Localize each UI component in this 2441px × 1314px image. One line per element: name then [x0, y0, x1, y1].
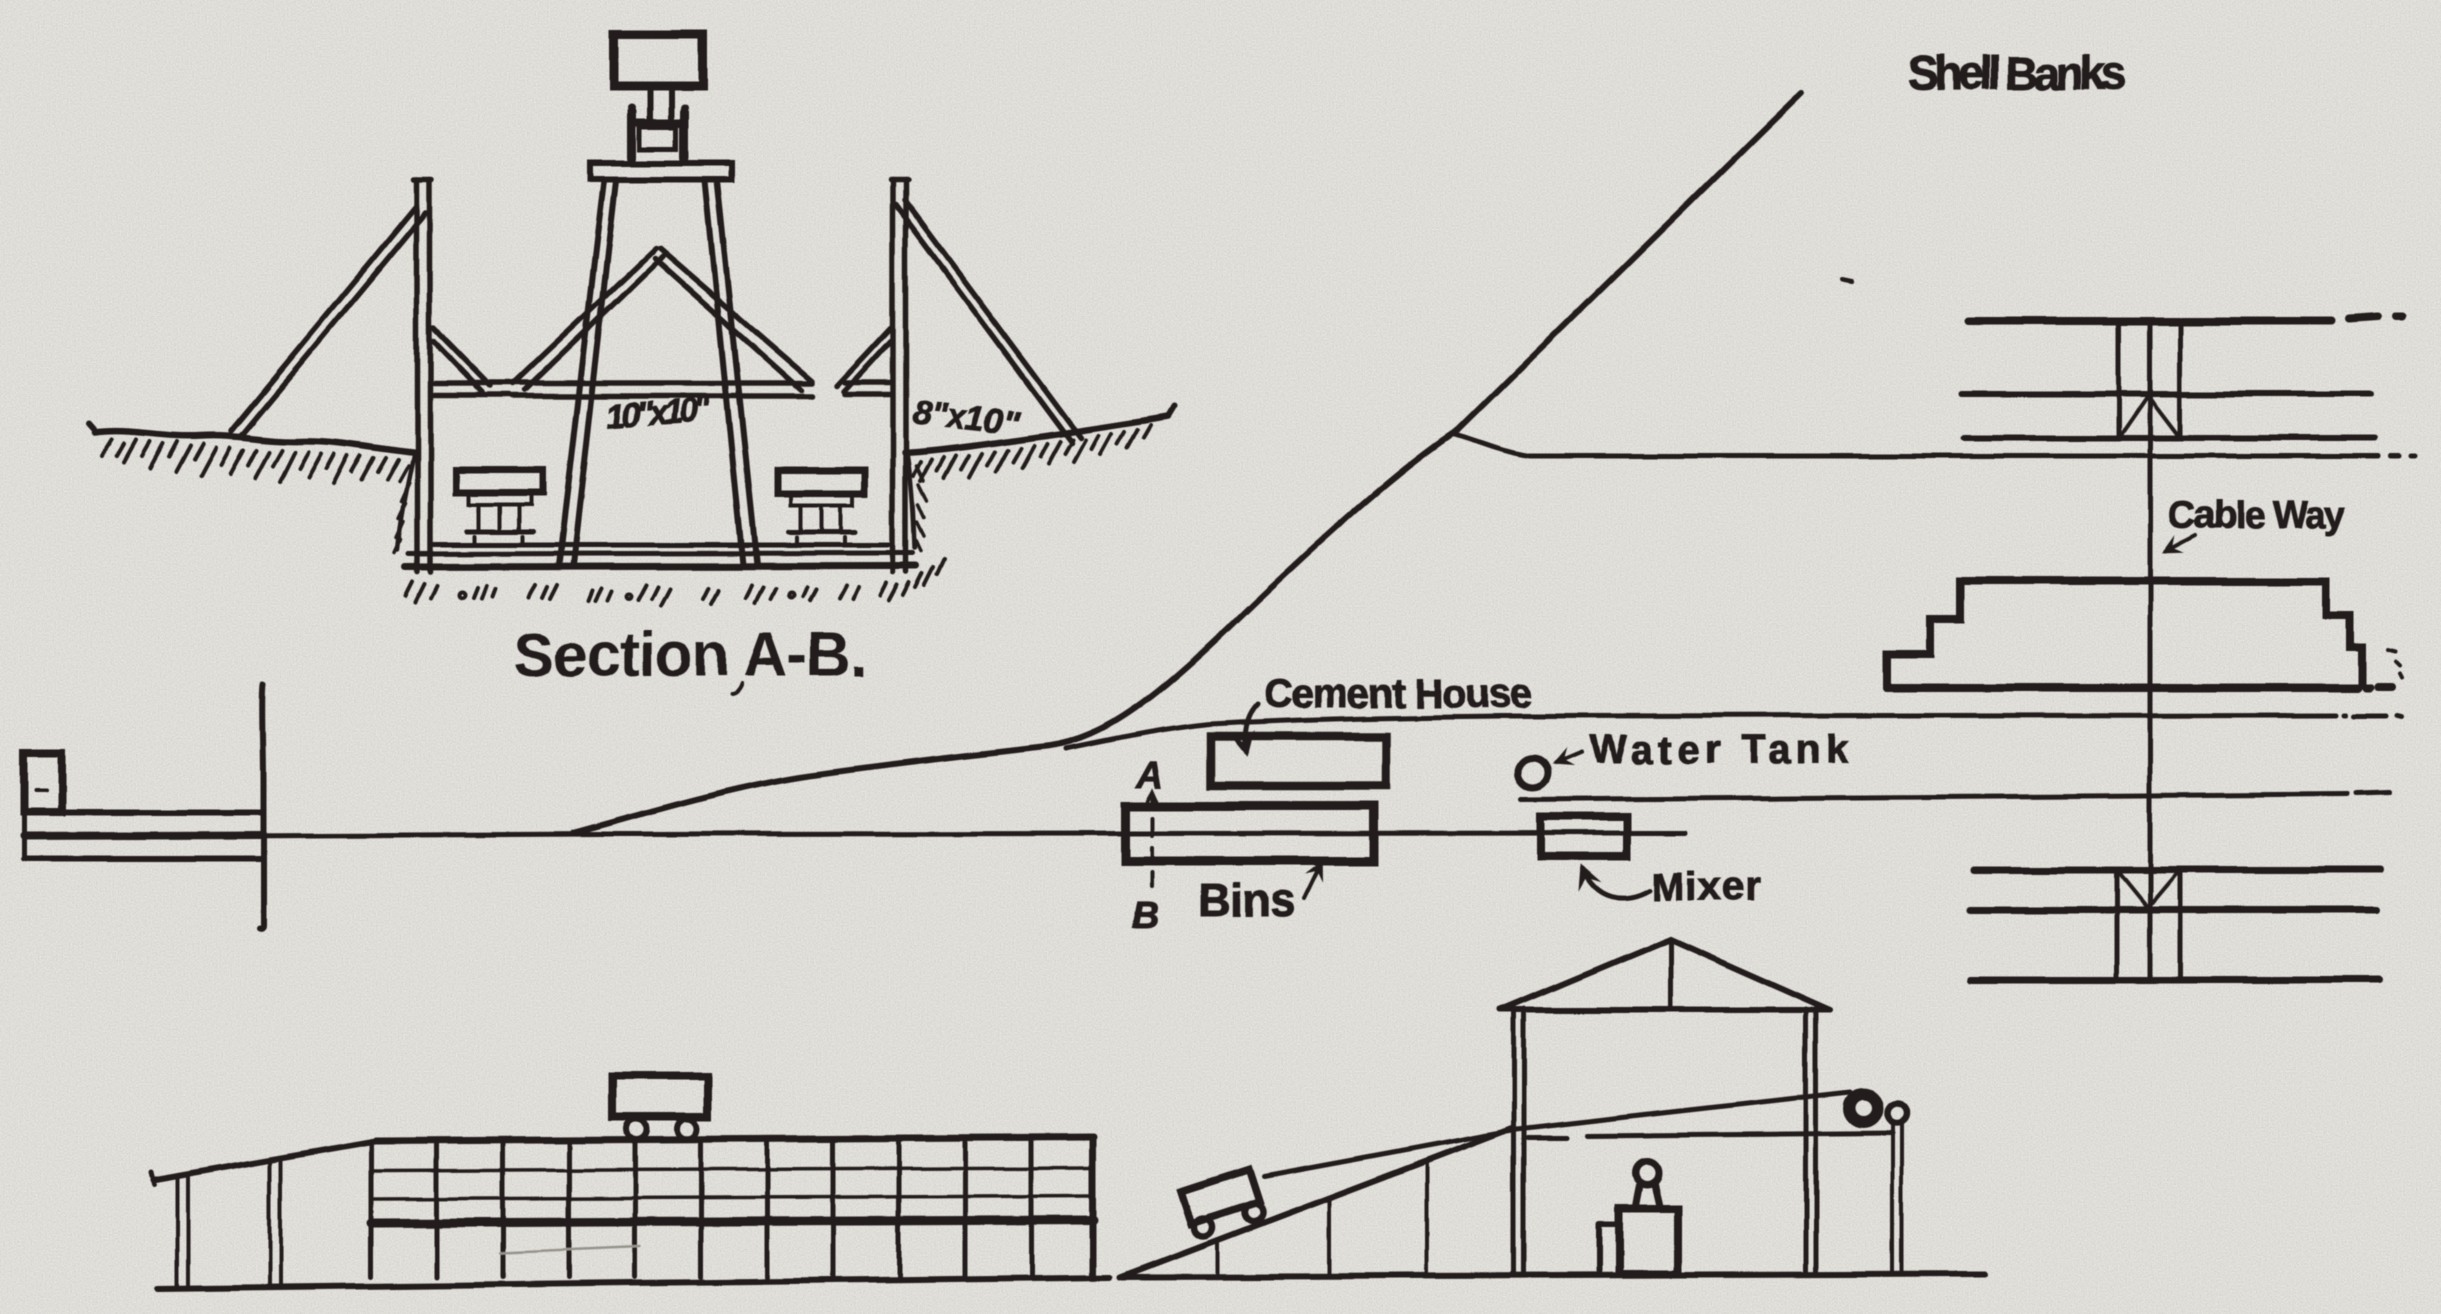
svg-text:Mixer: Mixer [1652, 865, 1760, 909]
svg-text:B: B [1132, 895, 1159, 937]
svg-text:Bins: Bins [1198, 874, 1296, 926]
svg-text:Cable Way: Cable Way [2168, 495, 2346, 537]
svg-text:10"x10": 10"x10" [605, 391, 712, 436]
svg-text:Cement House: Cement House [1264, 672, 1532, 716]
svg-text:A: A [1135, 755, 1163, 797]
svg-text:Shell Banks: Shell Banks [1908, 47, 2126, 99]
svg-text:Section A-B.: Section A-B. [512, 621, 868, 690]
